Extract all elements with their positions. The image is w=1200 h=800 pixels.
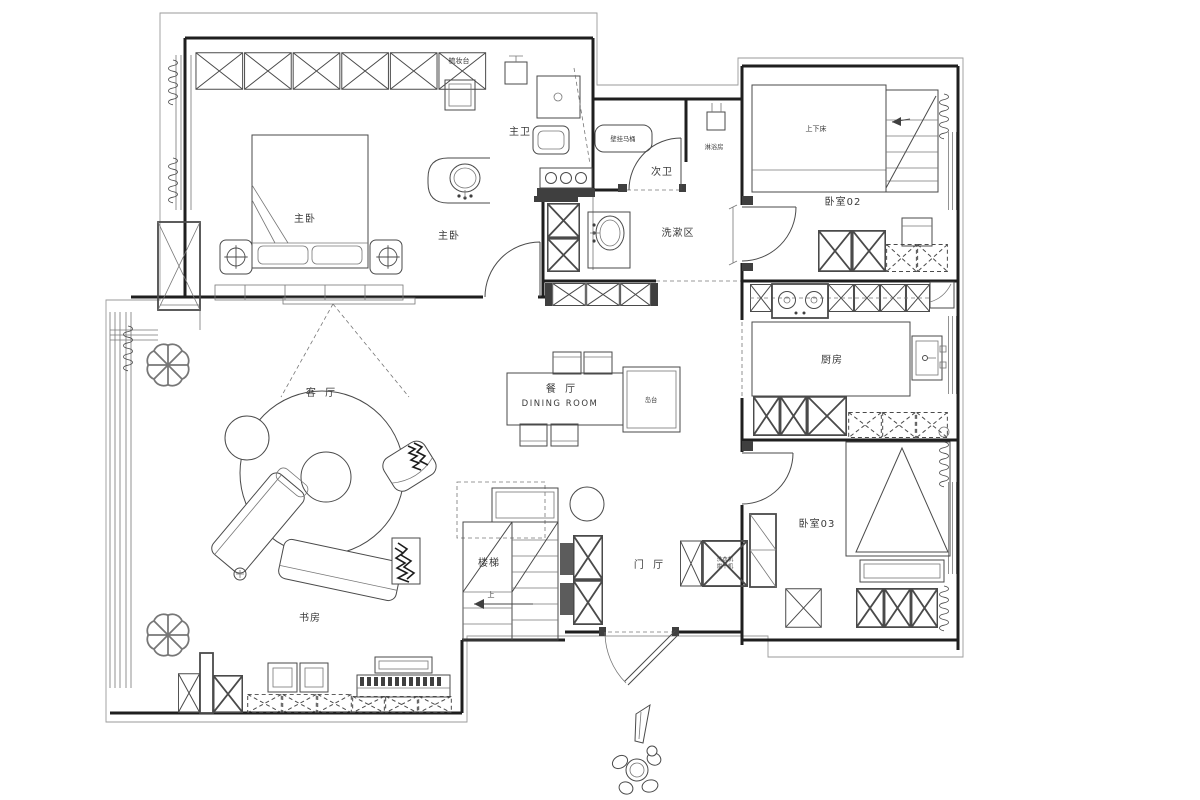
- label-kitchen: 厨房: [821, 353, 843, 366]
- label-wash-area: 洗漱区: [662, 227, 695, 239]
- doors-layer: [485, 138, 796, 685]
- bedroom03-wardrobe: [786, 589, 938, 627]
- label-dressing-table: 梳妆台: [449, 56, 470, 65]
- label-living-room: 客 厅: [306, 386, 338, 399]
- label-master-bedroom-nook: 主卧: [438, 229, 460, 242]
- toilet-master: [533, 126, 569, 154]
- master-bedroom-furniture: [196, 53, 527, 300]
- vanity-sink: [428, 158, 490, 203]
- label-stairs: 楼梯: [478, 556, 500, 569]
- bedroom02-door: [742, 207, 796, 261]
- double-bed: [252, 135, 368, 268]
- north-arrow-figure: [610, 705, 663, 796]
- bedroom02-wardrobe: [819, 231, 948, 272]
- dressing-table: [445, 80, 475, 110]
- bunk-ladder: [886, 90, 938, 192]
- label-bedroom-02: 卧室02: [825, 195, 862, 208]
- living-room-furniture: [147, 298, 440, 656]
- label-master-bathroom: 主卫: [509, 126, 531, 138]
- nightstand-left: [220, 240, 252, 274]
- bedroom03-bed: [846, 442, 950, 582]
- shower-head: [707, 103, 725, 130]
- label-washing-machine: 洗衣机: [717, 555, 734, 563]
- walls-layer: [110, 38, 958, 713]
- label-dryer: 烘干机: [717, 562, 734, 570]
- sofa-seat: [277, 538, 403, 602]
- floor-plan-svg: 主卧 主卧 主卫 次卫 洗漱区 卧室02 厨房 卧室03 客 厅 餐 厅 DIN…: [0, 0, 1200, 800]
- label-dining-en: DINING ROOM: [522, 399, 599, 409]
- plant-box: [392, 538, 420, 584]
- bedroom03-door: [742, 453, 793, 504]
- coffee-table: [301, 452, 351, 502]
- washing-machine-top: [505, 56, 527, 84]
- projection-lines: [281, 298, 415, 397]
- wash-cabinet-column: [548, 204, 580, 272]
- label-dining-cn: 餐 厅: [546, 382, 578, 395]
- stair-storage: [560, 536, 602, 624]
- kitchen-sink: [912, 336, 946, 380]
- kitchen-fixtures: [750, 282, 954, 437]
- corridor-cabinets: [553, 283, 651, 305]
- kitchen-bottom-cabinets: [754, 397, 949, 438]
- counter-basins: [540, 168, 592, 188]
- hall-tall-cabinet: [750, 514, 776, 587]
- master-bedroom-door: [485, 242, 540, 297]
- label-bedroom-03: 卧室03: [799, 517, 836, 530]
- corner-cabinet: [930, 282, 954, 308]
- label-second-bathroom: 次卫: [651, 165, 673, 178]
- bedroom02-desk: [902, 218, 932, 246]
- study-furniture: [178, 653, 451, 713]
- nightstand-right: [370, 240, 402, 274]
- label-entry-hall: 门 厅: [634, 558, 666, 571]
- bedroom-03-furniture: [750, 442, 950, 627]
- label-study: 书房: [299, 611, 321, 624]
- gas-stove: [772, 284, 828, 318]
- outer-contour: [106, 13, 963, 722]
- kitchen-top-counter: [750, 282, 954, 318]
- label-stairs-up: 上: [488, 590, 495, 599]
- side-table: [225, 416, 269, 460]
- shower-tray: [537, 76, 580, 118]
- dimension-line: [729, 205, 737, 265]
- entry-door: [605, 631, 679, 686]
- label-wall-hung-toilet: 壁挂马桶: [610, 134, 635, 143]
- plant-flower-top: [147, 344, 188, 385]
- entry-hall-fixtures: [680, 541, 747, 586]
- label-island: 岛台: [645, 395, 658, 404]
- plant-flower-bottom: [147, 614, 188, 655]
- stair-side-table: [570, 487, 604, 521]
- label-master-bedroom: 主卧: [294, 212, 316, 225]
- label-bunk-bed: 上下床: [806, 124, 827, 133]
- wardrobe-row: [196, 53, 486, 89]
- piano: [357, 657, 450, 697]
- wash-area-fixtures: [548, 204, 737, 306]
- floor-plan-page: 主卧 主卧 主卫 次卫 洗漱区 卧室02 厨房 卧室03 客 厅 餐 厅 DIN…: [0, 0, 1200, 800]
- washer-dryer-cabinet: [680, 541, 747, 586]
- second-bath-door: [629, 138, 681, 190]
- label-shower-room: 淋浴房: [705, 142, 724, 151]
- bunk-bed-shape: [752, 85, 886, 192]
